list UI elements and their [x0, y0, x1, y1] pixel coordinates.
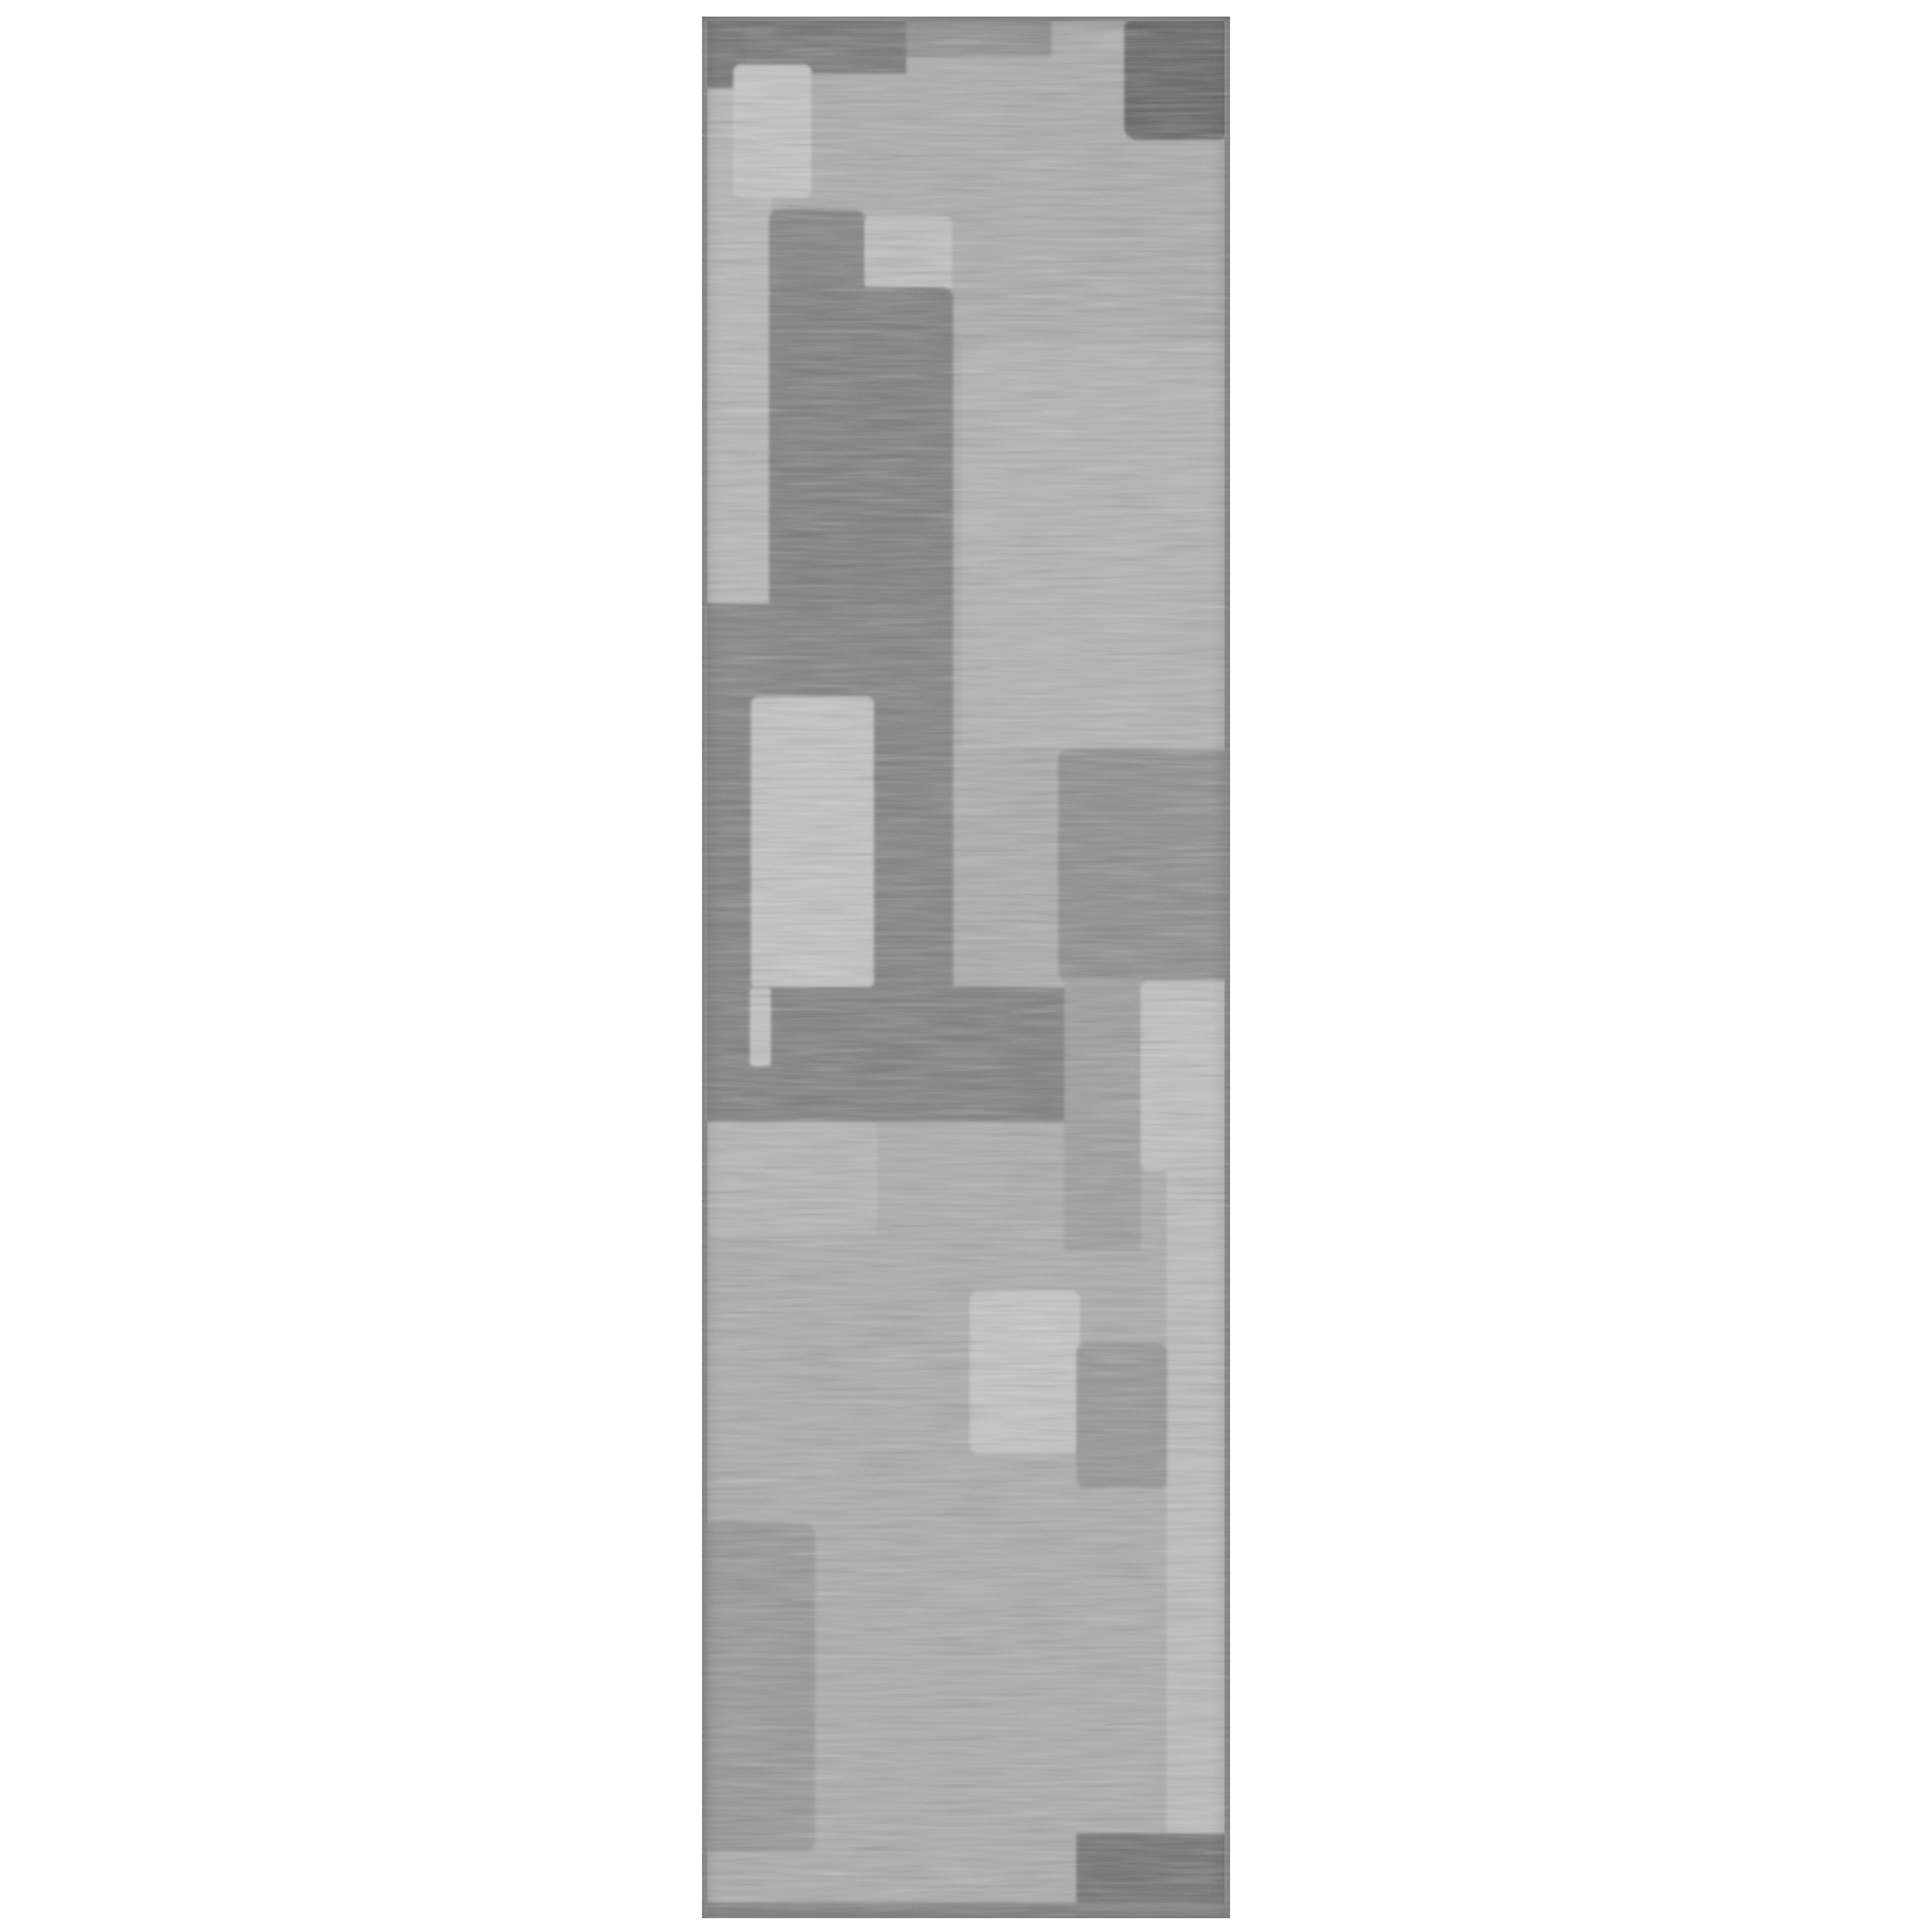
rug-patch-bottom-left-lighter-zone — [702, 1116, 877, 1236]
rug-patch-top-right-dark-block — [1124, 17, 1230, 140]
rug-patch-top-band-extension — [886, 17, 1052, 57]
rug — [702, 17, 1230, 1918]
photo-background — [0, 0, 1932, 1932]
rug-patch-right-upper-lighter-zone — [962, 343, 1230, 748]
rug-patch-right-light-block — [1141, 982, 1230, 1170]
rug-patch-right-edge-border — [1225, 17, 1230, 1918]
rug-patch-right-light-column — [1167, 1166, 1230, 1835]
rug-patch-left-edge-border — [702, 17, 707, 1918]
rug-patch-bottom-left-dark-column — [702, 1523, 815, 1852]
rug-patch-mid-dark-column — [1064, 978, 1141, 1251]
rug-patch-bottom-edge-band — [702, 1903, 1230, 1918]
rug-patch-lower-light-block — [970, 1291, 1080, 1454]
rug-patch-right-dark-block — [1058, 750, 1230, 980]
rug-patch-lower-dark-block — [1076, 1343, 1167, 1489]
rug-patch-upper-dark-block — [769, 210, 865, 297]
rug-patch-central-light-rectangle — [751, 696, 874, 989]
rug-patch-top-edge-border — [702, 17, 1230, 21]
rug-patch-central-dark-mass-upper — [769, 287, 953, 611]
rug-patch-upper-light-block — [733, 64, 811, 198]
rug-patch-small-light-block — [865, 216, 952, 290]
rug-patch-narrow-light-strip — [750, 987, 771, 1066]
